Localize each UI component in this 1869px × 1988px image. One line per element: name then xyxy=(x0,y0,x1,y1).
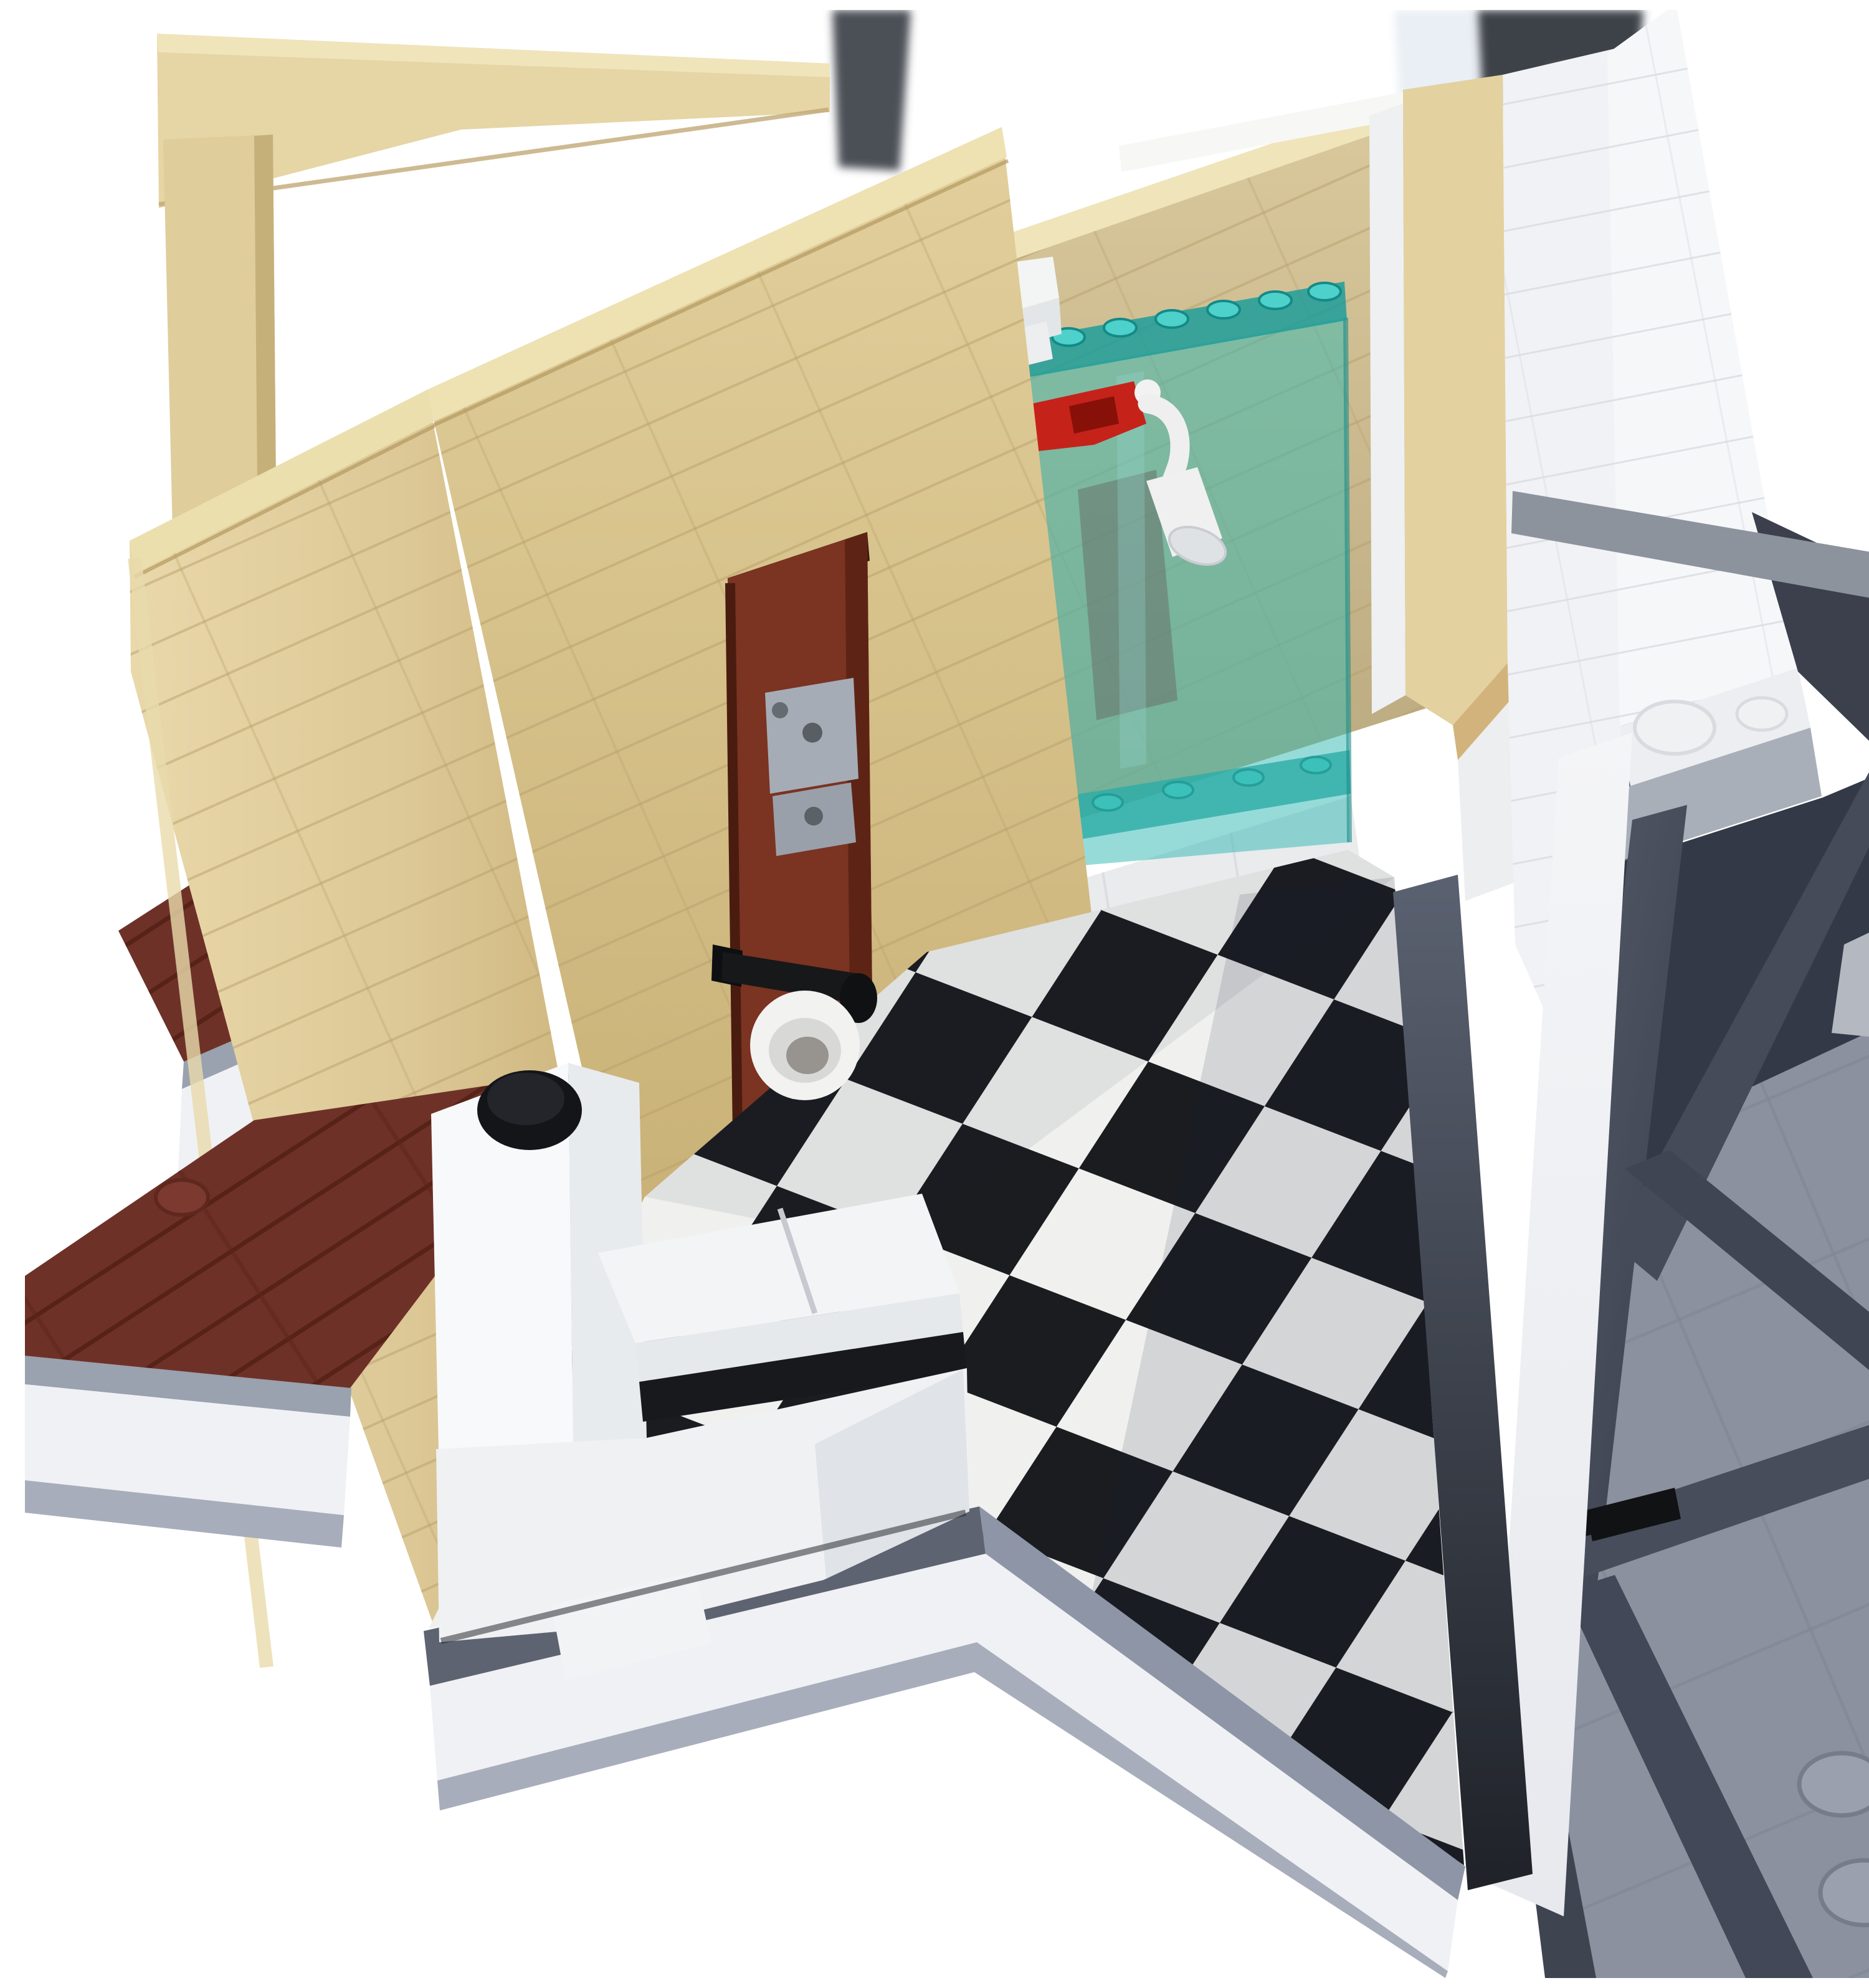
glass-stud xyxy=(1104,319,1136,336)
wall-side-stud xyxy=(1737,698,1787,730)
outer-white-wall-seams xyxy=(1607,10,1798,726)
door-hinges xyxy=(765,678,858,856)
hinge-hole xyxy=(802,723,822,743)
hinge-hole xyxy=(804,807,823,825)
toilet-flush-knob-top xyxy=(487,1073,564,1125)
photo-canvas xyxy=(25,10,1869,1978)
glass-stud xyxy=(1259,292,1291,309)
deck-stud xyxy=(156,1180,208,1215)
background-pillar xyxy=(832,10,911,171)
baseplate-stud xyxy=(1799,1753,1869,1815)
glass-stud xyxy=(1156,310,1188,328)
glass-stud xyxy=(1207,301,1240,318)
interior-wall-sliver xyxy=(1369,103,1405,714)
hinge-hole xyxy=(772,702,788,718)
lego-bathroom-photo: Photograph of a LEGO modular building ba… xyxy=(25,10,1869,1978)
toilet-paper-roll-hole xyxy=(786,1037,829,1074)
tan-end-column xyxy=(1403,75,1508,725)
wall-side-stud xyxy=(1635,702,1714,754)
glass-stud xyxy=(1308,283,1341,300)
